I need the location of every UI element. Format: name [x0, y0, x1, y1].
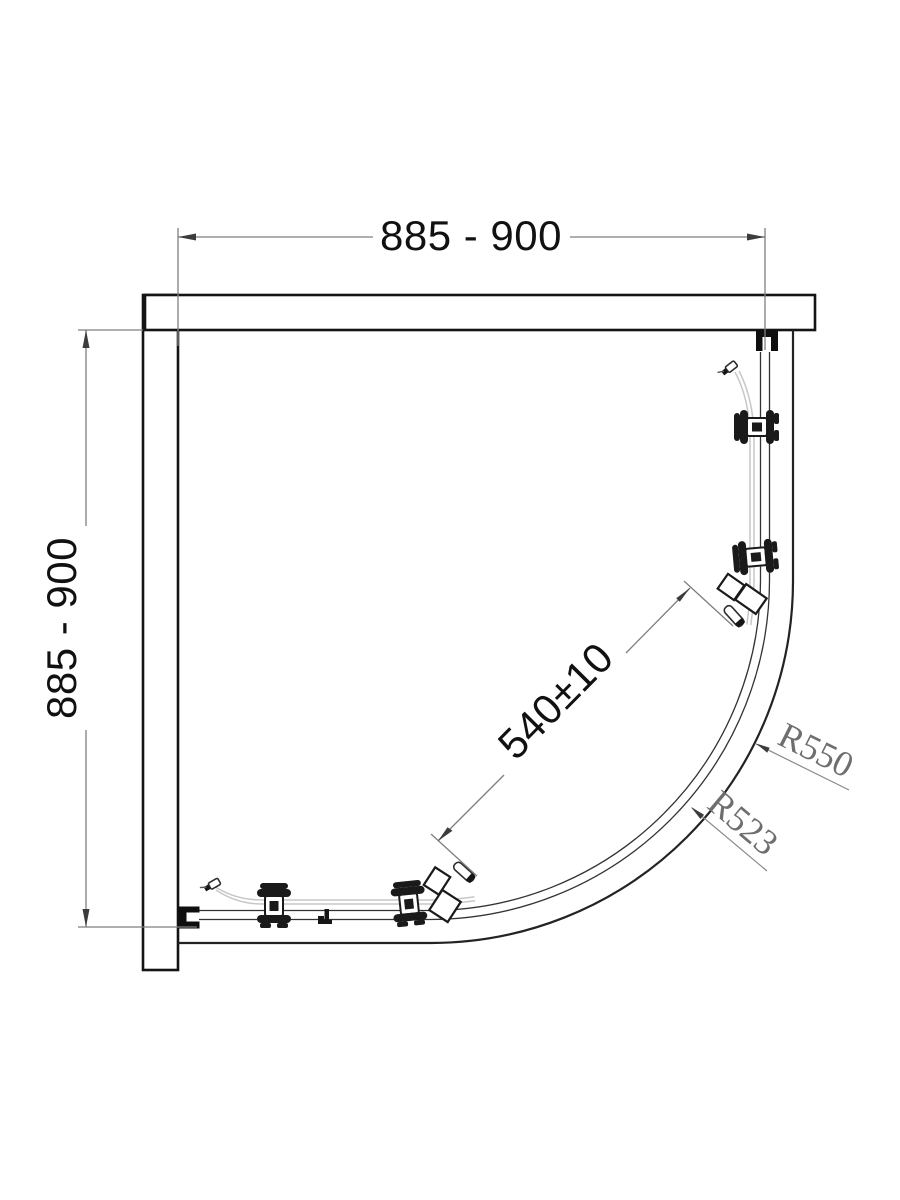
- door-handle-bottom-left: [200, 861, 476, 922]
- wall-profile-bottom-left: [178, 907, 200, 929]
- door-handle-top-right: [718, 360, 767, 628]
- wall-bars: [143, 295, 815, 970]
- wall-profile-brackets: [178, 330, 778, 929]
- door-end-cap: [723, 604, 746, 628]
- door-rails: [199, 352, 770, 920]
- inner-radius-callout: R523: [691, 782, 786, 871]
- opening-dimension: 540±10: [431, 581, 733, 876]
- roller-assembly: [732, 538, 780, 576]
- door-knob-icon: [718, 360, 738, 378]
- rail-stop-bracket: [318, 909, 332, 924]
- depth-dimension-label: 885 - 900: [38, 537, 85, 719]
- width-dimension-label: 885 - 900: [380, 212, 562, 259]
- side-wall-bar: [143, 295, 178, 970]
- technical-drawing-quadrant-enclosure: 885 - 900 885 - 900 540±10 R550 R523: [0, 0, 900, 1200]
- wall-profile-top-right: [756, 330, 778, 351]
- roller-assembly: [257, 883, 291, 928]
- roller-assemblies: [257, 410, 779, 928]
- glass-door-panels: [214, 371, 754, 904]
- roller-assembly: [734, 410, 779, 444]
- opening-dimension-label: 540±10: [489, 633, 623, 768]
- outer-radius-callout: R550: [756, 715, 860, 790]
- drawing-canvas: 885 - 900 885 - 900 540±10 R550 R523: [0, 0, 900, 1200]
- tray-outer-edge: [178, 330, 793, 943]
- outer-radius-label: R550: [772, 715, 860, 786]
- top-wall-bar: [145, 295, 815, 330]
